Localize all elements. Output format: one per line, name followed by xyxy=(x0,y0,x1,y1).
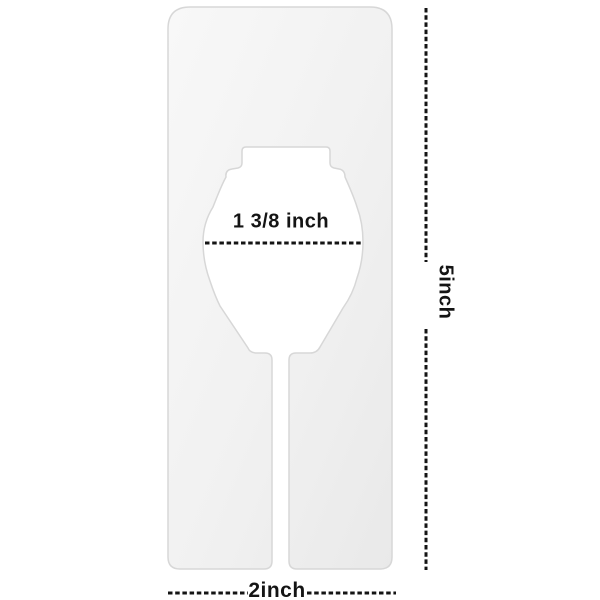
divider-plate-shape xyxy=(168,7,392,569)
diagram-canvas xyxy=(0,0,600,600)
size-divider-dimension-figure: 1 3/8 inch 5inch 2inch xyxy=(0,0,600,600)
width-label: 2inch xyxy=(248,579,305,600)
height-label: 5inch xyxy=(434,265,457,320)
hole-diameter-label: 1 3/8 inch xyxy=(233,211,329,234)
